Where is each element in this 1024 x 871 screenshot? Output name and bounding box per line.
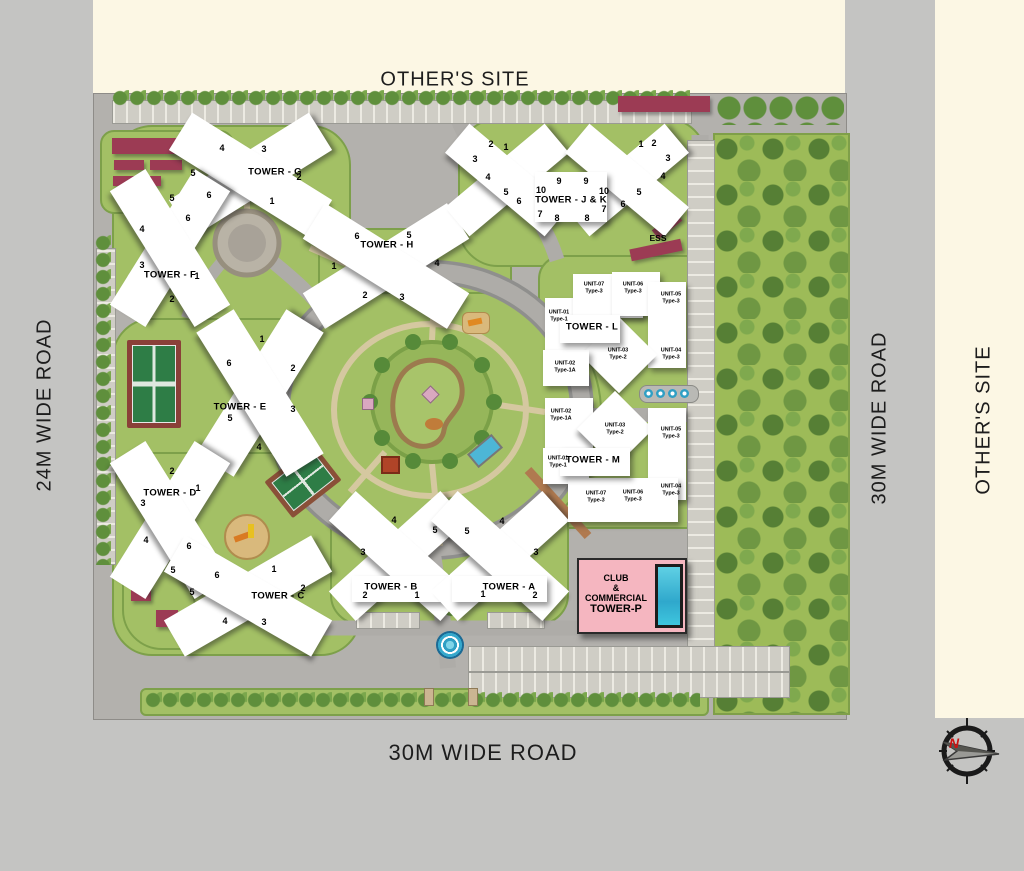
tower-m-unit-label: UNIT-06Type-3 (623, 489, 643, 502)
entry-fountain (436, 631, 464, 659)
unit-name: UNIT-01 (549, 309, 569, 316)
tower-b-unit-number: 3 (360, 547, 365, 557)
tower-d-unit-number: 5 (170, 565, 175, 575)
ess-label: ESS (649, 233, 666, 243)
tower-f-unit-number: 1 (194, 271, 199, 281)
water-jets-pad (639, 385, 699, 403)
tower-h-unit-number: 2 (362, 290, 367, 300)
service-building (114, 160, 144, 170)
tower-h-unit-number: 6 (354, 231, 359, 241)
tower-m-unit-label: UNIT-05Type-3 (661, 426, 681, 439)
tower-g-label: TOWER - G (248, 167, 302, 178)
tower-h-label: TOWER - H (360, 240, 413, 251)
unit-type: Type-3 (661, 354, 681, 361)
unit-type: Type-2 (608, 354, 628, 361)
compass-north-letter: N (949, 735, 960, 751)
tower-c-unit-number: 5 (189, 587, 194, 597)
tennis-court (127, 340, 181, 428)
tower-a-unit-number: 1 (480, 589, 485, 599)
unit-type: Type-1A (550, 415, 571, 422)
playground-small (462, 312, 490, 334)
tower-l-unit-label: UNIT-04Type-3 (661, 347, 681, 360)
tower-jk-unit-number: 10 (536, 185, 546, 195)
unit-type: Type-2 (605, 429, 625, 436)
tower-h-unit-number: 4 (434, 258, 439, 268)
unit-name: UNIT-01 (548, 455, 568, 462)
tower-f-label: TOWER - F (144, 270, 196, 281)
unit-name: UNIT-06 (623, 489, 643, 496)
service-building (150, 160, 182, 170)
tower-m-unit-label: UNIT-04Type-3 (661, 483, 681, 496)
parking-row-south-1 (468, 646, 790, 672)
tower-jk-unit-number: 5 (503, 187, 508, 197)
unit-name: UNIT-04 (661, 483, 681, 490)
others-site-top-label: OTHER'S SITE (380, 69, 529, 92)
tower-jk-unit-number: 2 (651, 138, 656, 148)
tower-f-unit-number: 6 (185, 213, 190, 223)
play-equipment-icon (468, 318, 483, 327)
tower-a-unit-number: 5 (464, 526, 469, 536)
tower-e-unit-number: 2 (290, 363, 295, 373)
tower-l-unit-label: UNIT-02Type-1A (554, 360, 575, 373)
gazebo-icon (362, 398, 374, 410)
tower-e-unit-number: 4 (256, 442, 261, 452)
tower-jk-unit-number: 2 (488, 139, 493, 149)
tower-b-unit-number: 5 (432, 525, 437, 535)
bottom-road-label: 30M WIDE ROAD (388, 740, 577, 766)
tower-m-label: TOWER - M (566, 455, 620, 466)
tower-l-unit-label: UNIT-05Type-3 (661, 291, 681, 304)
tower-h-unit-number: 5 (406, 230, 411, 240)
tower-g-unit-number: 3 (261, 144, 266, 154)
right-road-label: 30M WIDE ROAD (869, 331, 892, 504)
site-plan-canvas: ESS (0, 0, 1024, 871)
compass-rose: N (923, 706, 1011, 796)
tower-jk-unit-number: 9 (583, 176, 588, 186)
tower-jk-unit-number: 3 (472, 154, 477, 164)
tower-jk-unit-number: 6 (516, 196, 521, 206)
tower-jk-unit-number: 6 (620, 199, 625, 209)
tower-c-unit-number: 2 (300, 583, 305, 593)
tower-c-unit-number: 4 (222, 616, 227, 626)
tower-e-unit-number: 6 (226, 358, 231, 368)
tower-b-label: TOWER - B (364, 582, 417, 593)
playground (224, 514, 270, 560)
unit-name: UNIT-04 (661, 347, 681, 354)
club-label-block: CLUB & COMMERCIAL TOWER-P (580, 562, 652, 626)
tower-g-unit-number: 5 (190, 168, 195, 178)
tower-e-unit-number: 5 (227, 413, 232, 423)
tower-f-unit-number: 2 (169, 294, 174, 304)
tower-l-unit-label: UNIT-03Type-2 (608, 347, 628, 360)
water-jet-icon (644, 389, 653, 398)
unit-name: UNIT-06 (623, 281, 643, 288)
tower-jk-unit-number: 7 (601, 204, 606, 214)
tennis-court-surface (132, 345, 176, 423)
tower-d-unit-number: 2 (169, 466, 174, 476)
tower-e-unit-number: 1 (259, 334, 264, 344)
unit-type: Type-3 (661, 298, 681, 305)
tower-d-unit-number: 3 (140, 498, 145, 508)
tower-l-unit-label: UNIT-07Type-3 (584, 281, 604, 294)
tree-row-west (95, 235, 111, 565)
tower-f-unit-number: 3 (139, 260, 144, 270)
water-jet-icon (668, 389, 677, 398)
tower-jk-unit-number: 8 (554, 213, 559, 223)
tower-e-label: TOWER - E (214, 402, 267, 413)
tower-jk-label: TOWER - J & K (535, 195, 607, 206)
tower-m-unit-label: UNIT-03Type-2 (605, 422, 625, 435)
unit-type: Type-3 (623, 288, 643, 295)
entry-gate-post (468, 688, 478, 706)
unit-type: Type-3 (584, 288, 604, 295)
tower-jk-unit-number: 10 (599, 186, 609, 196)
tower-c-unit-number: 1 (271, 564, 276, 574)
parking-strip-east (687, 140, 715, 667)
club-label-line4: TOWER-P (590, 603, 642, 615)
play-equipment-icon (248, 524, 254, 538)
tower-d-unit-number: 6 (186, 541, 191, 551)
tower-g-unit-number: 4 (219, 143, 224, 153)
tower-a-unit-number: 4 (499, 516, 504, 526)
tower-b-unit-number: 2 (362, 590, 367, 600)
club-label-line3: COMMERCIAL (585, 593, 647, 603)
swimming-pool (655, 564, 683, 628)
tower-m-unit-label: UNIT-07Type-3 (586, 490, 606, 503)
tower-h-unit-number: 1 (331, 261, 336, 271)
unit-name: UNIT-07 (584, 281, 604, 288)
tower-b-unit-number: 4 (391, 515, 396, 525)
tree-row-top (112, 90, 690, 106)
tower-jk-unit-number: 4 (485, 172, 490, 182)
tower-a-unit-number: 2 (532, 590, 537, 600)
service-building-top-strip (618, 96, 710, 112)
park-flowerbed (425, 418, 443, 430)
club-label-line1: CLUB (604, 573, 629, 583)
unit-type: Type-3 (586, 497, 606, 504)
entry-gate-post (424, 688, 434, 706)
red-gazebo-icon (381, 456, 400, 474)
unit-name: UNIT-05 (661, 426, 681, 433)
tower-jk-unit-number: 7 (537, 209, 542, 219)
tower-h-unit-number: 3 (399, 292, 404, 302)
tree-row-north-forest (716, 95, 844, 125)
unit-name: UNIT-03 (608, 347, 628, 354)
tower-g-unit-number: 2 (296, 172, 301, 182)
left-road-label: 24M WIDE ROAD (34, 318, 57, 491)
others-site-right-label: OTHER'S SITE (973, 345, 996, 494)
tower-a-label: TOWER - A (483, 582, 536, 593)
tower-c-unit-number: 3 (261, 617, 266, 627)
tower-a-unit-number: 3 (533, 547, 538, 557)
water-jet-icon (680, 389, 689, 398)
unit-type: Type-1A (554, 367, 575, 374)
water-jet-icon (656, 389, 665, 398)
tower-jk-unit-number: 9 (556, 176, 561, 186)
tower-b-unit-number: 1 (414, 590, 419, 600)
tower-l-unit-label: UNIT-01Type-1 (549, 309, 569, 322)
club-label-line2: & (613, 583, 620, 593)
tower-jk-unit-number: 4 (660, 171, 665, 181)
tower-jk-unit-number: 3 (665, 153, 670, 163)
parking-row-tower-b (356, 612, 420, 629)
tower-d-unit-number: 4 (143, 535, 148, 545)
unit-name: UNIT-05 (661, 291, 681, 298)
unit-type: Type-3 (623, 496, 643, 503)
unit-name: UNIT-03 (605, 422, 625, 429)
tower-d-unit-number: 1 (195, 483, 200, 493)
tower-jk-unit-number: 1 (503, 142, 508, 152)
unit-type: Type-3 (661, 433, 681, 440)
unit-name: UNIT-02 (550, 408, 571, 415)
tower-f-unit-number: 4 (139, 224, 144, 234)
tower-g-unit-number: 1 (269, 196, 274, 206)
tower-e-unit-number: 3 (290, 404, 295, 414)
tower-l-label: TOWER - L (566, 322, 618, 333)
tower-jk-unit-number: 8 (584, 213, 589, 223)
unit-type: Type-1 (549, 316, 569, 323)
unit-name: UNIT-02 (554, 360, 575, 367)
tower-c-unit-number: 6 (214, 570, 219, 580)
tower-c-label: TOWER - C (251, 591, 304, 602)
circular-plaza-center (228, 224, 266, 262)
tower-m-unit-label: UNIT-02Type-1A (550, 408, 571, 421)
unit-name: UNIT-07 (586, 490, 606, 497)
tree-row-bottom (145, 692, 700, 708)
tower-g-unit-number: 6 (206, 190, 211, 200)
tower-l-unit-label: UNIT-06Type-3 (623, 281, 643, 294)
tower-f-unit-number: 5 (169, 193, 174, 203)
tower-jk-unit-number: 1 (638, 139, 643, 149)
unit-type: Type-1 (548, 462, 568, 469)
unit-type: Type-3 (661, 490, 681, 497)
tower-m-unit-label: UNIT-01Type-1 (548, 455, 568, 468)
tower-jk-unit-number: 5 (636, 187, 641, 197)
tower-d-label: TOWER - D (143, 488, 196, 499)
